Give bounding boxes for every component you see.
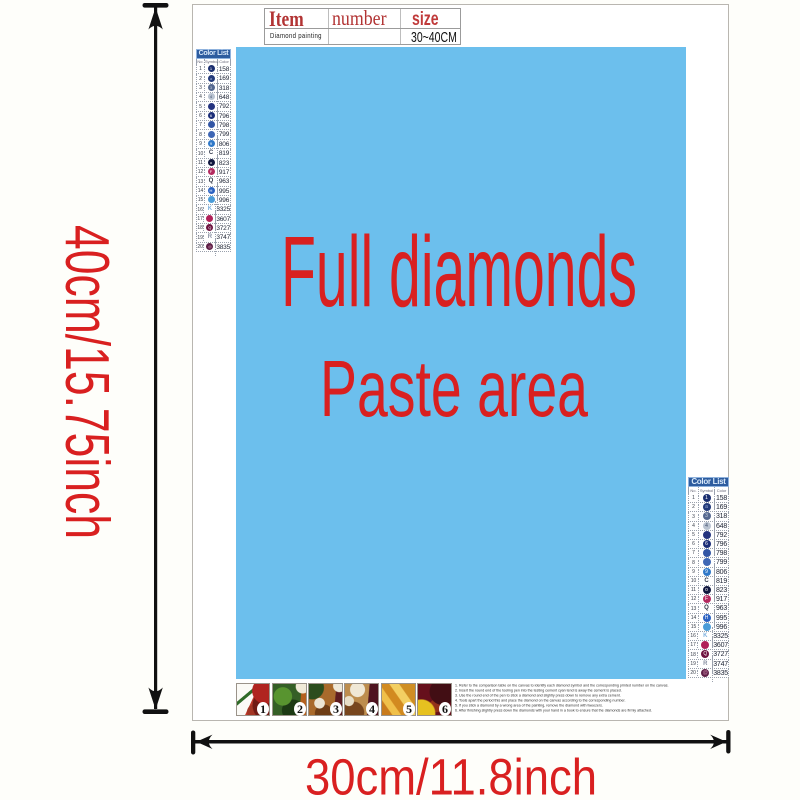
svg-text:30cm/11.8inch: 30cm/11.8inch: [305, 749, 597, 800]
svg-text:40cm/15.75inch: 40cm/15.75inch: [52, 225, 121, 539]
svg-text:Paste area: Paste area: [320, 344, 588, 433]
svg-text:Full diamonds: Full diamonds: [281, 216, 637, 328]
